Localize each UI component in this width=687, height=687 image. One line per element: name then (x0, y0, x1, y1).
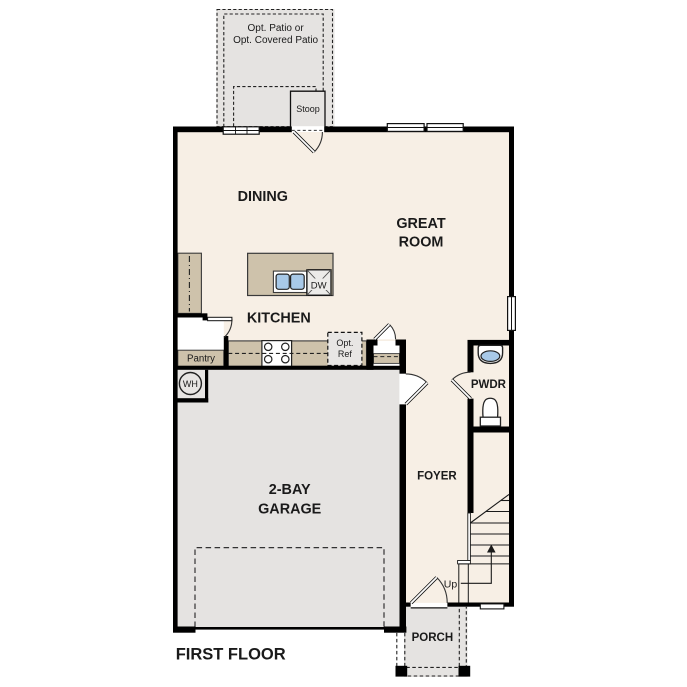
svg-text:PWDR: PWDR (471, 379, 507, 391)
svg-text:Stoop: Stoop (296, 104, 320, 114)
svg-text:Opt. Patio or: Opt. Patio or (248, 23, 305, 34)
svg-text:FOYER: FOYER (417, 470, 457, 482)
svg-text:Up: Up (444, 578, 458, 590)
svg-text:PORCH: PORCH (412, 632, 454, 644)
svg-text:ROOM: ROOM (399, 234, 444, 250)
svg-text:GARAGE: GARAGE (258, 501, 322, 517)
svg-text:Pantry: Pantry (187, 353, 215, 364)
svg-text:GREAT: GREAT (396, 216, 446, 232)
svg-text:WH: WH (183, 379, 198, 389)
svg-text:Opt.: Opt. (336, 338, 353, 348)
svg-text:KITCHEN: KITCHEN (247, 310, 311, 326)
svg-text:Ref: Ref (338, 349, 353, 359)
svg-text:FIRST FLOOR: FIRST FLOOR (176, 645, 286, 663)
svg-text:Opt. Covered Patio: Opt. Covered Patio (233, 35, 318, 46)
svg-text:DW: DW (311, 281, 327, 292)
svg-text:2-BAY: 2-BAY (269, 482, 311, 498)
svg-text:DINING: DINING (238, 189, 288, 205)
